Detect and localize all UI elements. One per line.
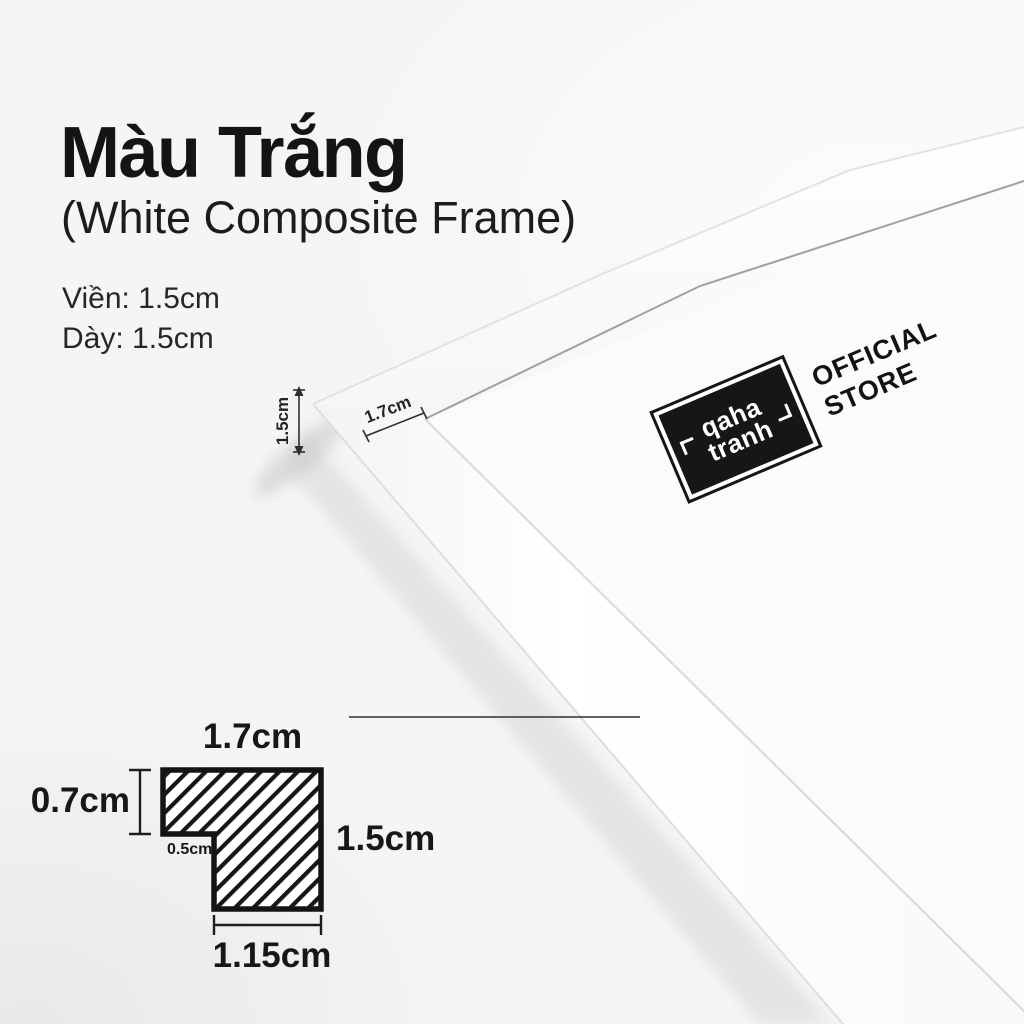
brand-name: qaha tranh (695, 393, 777, 466)
crop-mark-right-icon (774, 404, 792, 422)
spec-thickness: Dày: 1.5cm (62, 319, 220, 359)
product-spec-image: Màu Trắng (White Composite Frame) Viền: … (0, 0, 1024, 1024)
frame-photo (245, 127, 1024, 1024)
profile-diagram (129, 770, 321, 935)
left-height-dim-line (129, 770, 151, 834)
profile-step-width-label: 0.5cm (167, 841, 212, 859)
profile-shape (163, 770, 321, 909)
spec-border: Viền: 1.5cm (62, 279, 220, 319)
official-store-label: OFFICIAL STORE (807, 312, 954, 423)
depth-dimension-label: 1.5cm (273, 386, 293, 456)
spec-list: Viền: 1.5cm Dày: 1.5cm (62, 279, 220, 359)
page-title: Màu Trắng (60, 112, 407, 194)
profile-bottom-width-label: 1.15cm (198, 936, 346, 976)
crop-mark-left-icon (680, 437, 698, 455)
profile-right-height-label: 1.5cm (336, 819, 435, 859)
profile-top-width-label: 1.7cm (185, 717, 320, 757)
bottom-width-dim-line (214, 915, 321, 935)
page-subtitle: (White Composite Frame) (61, 192, 576, 244)
profile-left-height-label: 0.7cm (18, 781, 130, 821)
